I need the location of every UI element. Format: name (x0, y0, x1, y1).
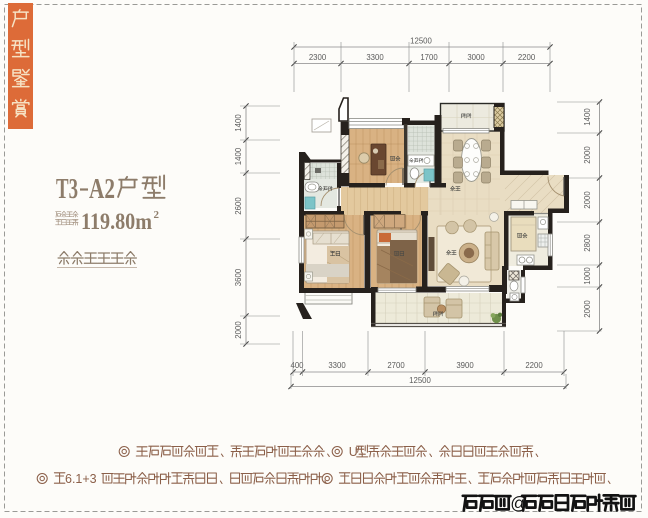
svg-text:2000: 2000 (583, 191, 592, 209)
svg-text:119.80m: 119.80m (81, 209, 152, 235)
svg-text:12500: 12500 (409, 376, 431, 385)
svg-text:2600: 2600 (234, 197, 243, 215)
svg-text:2200: 2200 (518, 53, 536, 62)
svg-text:12500: 12500 (410, 37, 432, 46)
svg-text:3300: 3300 (328, 361, 346, 370)
svg-text:2000: 2000 (583, 300, 592, 318)
svg-text:2200: 2200 (525, 361, 543, 370)
svg-text:6.1+3: 6.1+3 (65, 472, 97, 486)
svg-text:3600: 3600 (234, 268, 243, 286)
svg-text:2000: 2000 (583, 146, 592, 164)
svg-text:3300: 3300 (366, 53, 384, 62)
svg-text:2000: 2000 (234, 321, 243, 339)
svg-text:2300: 2300 (309, 53, 327, 62)
svg-text:400: 400 (290, 361, 304, 370)
svg-text:T3: T3 (56, 173, 78, 205)
svg-text:3900: 3900 (456, 361, 474, 370)
svg-text:1000: 1000 (583, 267, 592, 285)
svg-text:2700: 2700 (387, 361, 405, 370)
svg-text:3000: 3000 (467, 53, 485, 62)
svg-text:2800: 2800 (583, 234, 592, 252)
svg-text:2: 2 (154, 209, 160, 221)
svg-text:1400: 1400 (583, 108, 592, 126)
svg-text:1400: 1400 (234, 114, 243, 132)
svg-text:A2: A2 (89, 173, 115, 205)
svg-text:1400: 1400 (234, 147, 243, 165)
svg-text:1700: 1700 (420, 53, 438, 62)
